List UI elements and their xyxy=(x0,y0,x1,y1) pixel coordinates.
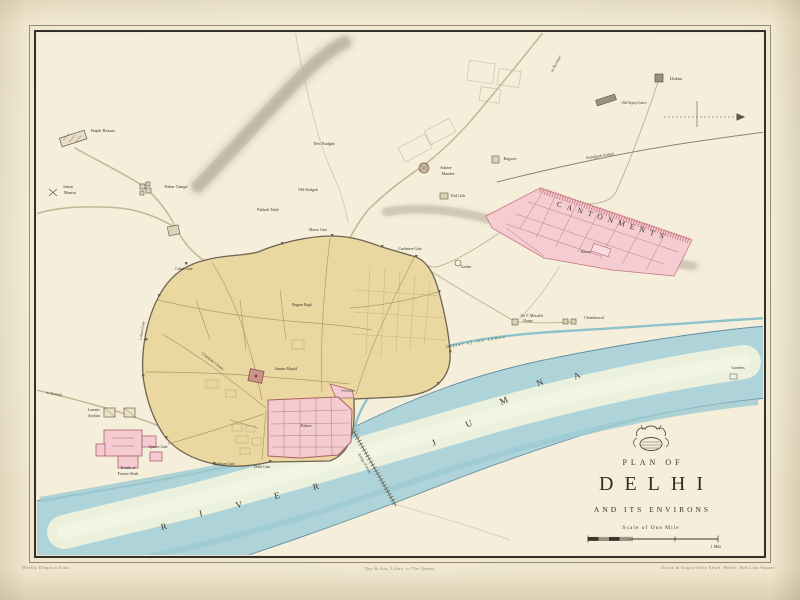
map-label-asylum: Asylum xyxy=(88,414,101,418)
map-label-u: U xyxy=(464,419,474,430)
map-label-subzee: Subzee xyxy=(440,166,452,170)
map-label-i: I xyxy=(198,509,203,518)
map-label-r: R xyxy=(312,482,320,492)
imprint-right: Drawn & Engraved by Edwd. Weller, Red Li… xyxy=(661,565,776,570)
map-label-feroze-shah: Feroze Shah xyxy=(118,472,139,476)
map-label-cabul-gate: Cabul Gate xyxy=(175,268,192,272)
map-label-juntur: Juntur xyxy=(63,185,73,189)
map-label-a: A xyxy=(572,371,582,382)
map-label-mundee: Mundee xyxy=(441,172,454,176)
map-label-lahore-gate: Lahore Gate xyxy=(139,321,146,340)
map-label-to-kootub: to Kootub xyxy=(46,391,62,398)
map-label-offset-of-the-jumna: Offset of the Jumna xyxy=(446,335,507,350)
map-label-palace: Palace xyxy=(301,424,312,428)
map-label-e: E xyxy=(273,491,281,501)
antique-map-sheet: PLAN OF DELHI AND ITS ENVIRONS Scale of … xyxy=(0,0,800,600)
map-label-old-sepoy-lines: Old Sepoy Lines xyxy=(622,102,647,106)
map-label-v: V xyxy=(235,500,243,510)
map-label-begum-bagh: Begum Bagh xyxy=(292,304,312,308)
map-label-bridge-of-boats: Bridge of Boats xyxy=(357,453,371,475)
map-label-gardens: Gardens xyxy=(731,366,744,370)
map-label-cashmere-gate: Cashmere Gate xyxy=(398,248,421,252)
map-label-new-budgah: New Budgah xyxy=(314,142,335,146)
map-label-pahar-gunge: Pahar Gunge xyxy=(164,185,187,190)
map-label-kotila-of: Kotila of xyxy=(120,466,135,470)
map-label-muntur: Muntur xyxy=(64,191,76,195)
map-label-bazaar: Bazaar xyxy=(581,251,591,255)
map-label-chandnee-chowk: Chandnee Chowk xyxy=(200,352,224,372)
map-label-jumma-musjid: Jumma Musjid xyxy=(275,368,298,372)
map-label-1-mile: 1 Mile xyxy=(711,545,722,549)
map-label-eed-gah: Eed Gah xyxy=(451,194,465,198)
map-label-to-kurnaul: to Kurnaul xyxy=(550,55,562,72)
map-label-garden: Garden xyxy=(461,266,472,270)
map-label-dukka: Dukka xyxy=(670,77,682,82)
map-label-house: House xyxy=(523,320,533,324)
map-label-chundrawul: Chundrawul xyxy=(584,316,604,320)
map-labels-layer: Rajah BazaarPahar GungeJunturMunturNew B… xyxy=(0,0,800,600)
map-label-m: M xyxy=(498,395,509,407)
map-label-cantonments: CANTONMENTS xyxy=(556,200,670,241)
map-label-bujpore: Bujpore xyxy=(504,157,517,161)
map-label-najufgurh-kullah: Najufgurh Kullah xyxy=(586,152,615,160)
map-label-selimgurh: Selimgurh xyxy=(341,389,356,393)
map-label-j: J xyxy=(431,438,438,448)
map-label-lunatic: Lunatic xyxy=(88,408,100,412)
map-label-r: R xyxy=(160,522,168,532)
map-label-rajah-bazaar: Rajah Bazaar xyxy=(91,129,115,134)
map-label-delhi-gate: Delhi Gate xyxy=(254,466,271,470)
map-label-moree-gate: Moree Gate xyxy=(309,229,327,233)
map-label-ajmere-gate: Ajmere Gate xyxy=(148,446,168,450)
map-label-n: N xyxy=(535,378,545,389)
map-label-pukkah-talab: Pukkah Talab xyxy=(257,208,279,212)
map-label-turkman-gate: Turkman Gate xyxy=(213,463,235,467)
map-label-old-budgah: Old Budgah xyxy=(298,188,317,192)
